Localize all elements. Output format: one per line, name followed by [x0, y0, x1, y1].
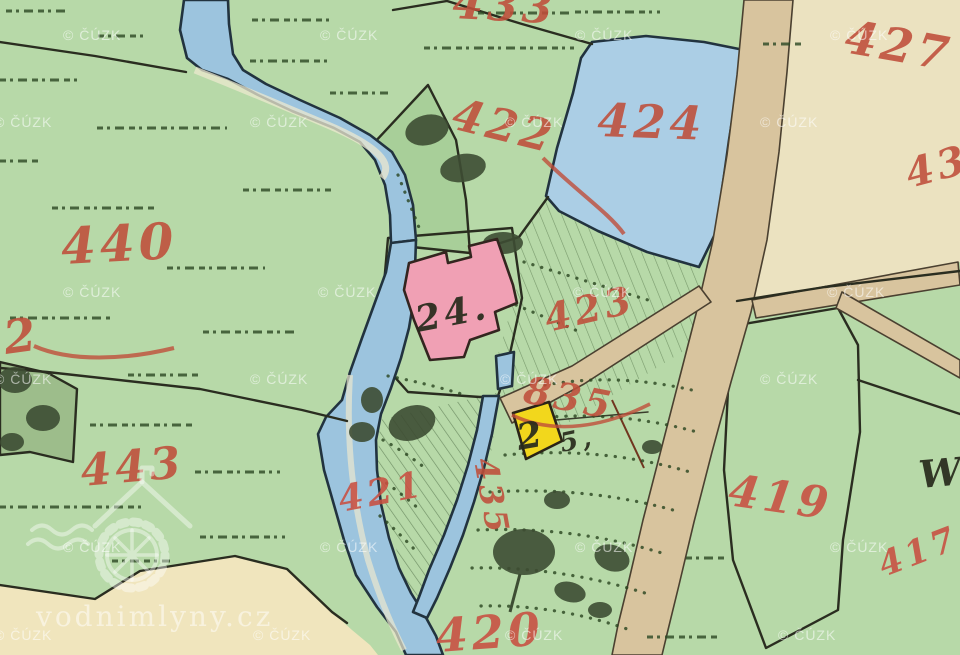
cuzk-watermark: © ČÚZK [760, 371, 818, 387]
tree-icon [588, 602, 612, 618]
map-tile[interactable]: 433 427 424 422 440 2 443 423 835 421 43… [0, 0, 960, 655]
tree-icon [361, 387, 383, 413]
cadastral-map-canvas: 433 427 424 422 440 2 443 423 835 421 43… [0, 0, 960, 655]
cuzk-watermark: © ČÚZK [827, 284, 885, 300]
cuzk-watermark: © ČÚZK [760, 114, 818, 130]
tree-icon [349, 422, 375, 442]
tree-icon [493, 529, 555, 575]
tree-icon [642, 440, 662, 454]
cuzk-watermark: © ČÚZK [575, 539, 633, 555]
parcel-label-433: 433 [451, 0, 557, 34]
cuzk-watermark: © ČÚZK [0, 114, 52, 130]
parcel-label-424: 424 [597, 93, 707, 151]
parcel-label-442: 2 [0, 306, 43, 365]
cuzk-watermark: © ČÚZK [63, 27, 121, 43]
cuzk-watermark: © ČÚZK [250, 114, 308, 130]
cuzk-watermark: © ČÚZK [320, 539, 378, 555]
cuzk-watermark: © ČÚZK [0, 371, 52, 387]
cuzk-watermark: © ČÚZK [778, 627, 836, 643]
cuzk-watermark: © ČÚZK [320, 27, 378, 43]
tree-icon [0, 433, 24, 451]
tree-icon [26, 405, 60, 431]
cuzk-watermark: © ČÚZK [318, 284, 376, 300]
parcel-label-440: 440 [60, 211, 179, 276]
tree-icon [544, 491, 570, 509]
cuzk-watermark: © ČÚZK [505, 627, 563, 643]
cuzk-watermark: © ČÚZK [573, 284, 631, 300]
cuzk-watermark: © ČÚZK [830, 27, 888, 43]
cuzk-watermark: © ČÚZK [575, 27, 633, 43]
cuzk-watermark: © ČÚZK [500, 371, 558, 387]
cuzk-watermark: © ČÚZK [830, 539, 888, 555]
cuzk-watermark: © ČÚZK [63, 284, 121, 300]
logo-spokes [107, 530, 157, 580]
site-watermark: vodnimlyny.cz [35, 600, 273, 633]
map-letter-w: W [917, 448, 960, 497]
cuzk-watermark: © ČÚZK [250, 371, 308, 387]
cuzk-watermark: © ČÚZK [505, 114, 563, 130]
